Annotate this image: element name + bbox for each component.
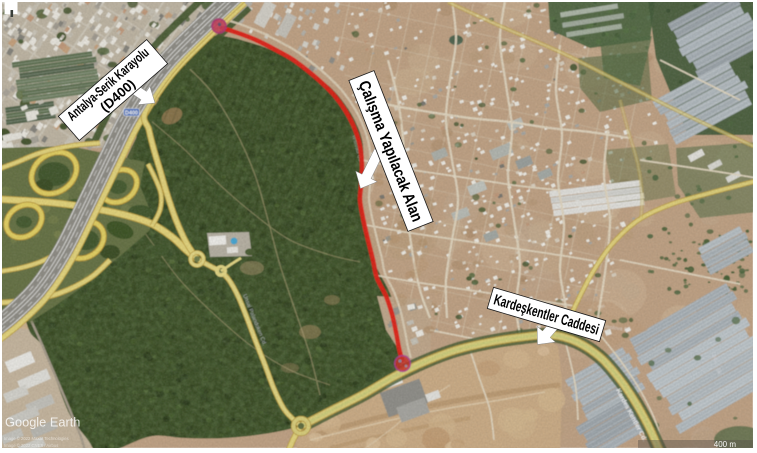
- svg-text:400 m: 400 m: [714, 440, 737, 449]
- svg-text:Image © 2022 CNES / Airbus: Image © 2022 CNES / Airbus: [4, 443, 58, 448]
- svg-text:Image © 2022 Maxar Technologie: Image © 2022 Maxar Technologies: [4, 436, 69, 441]
- svg-text:Google Earth: Google Earth: [5, 415, 80, 430]
